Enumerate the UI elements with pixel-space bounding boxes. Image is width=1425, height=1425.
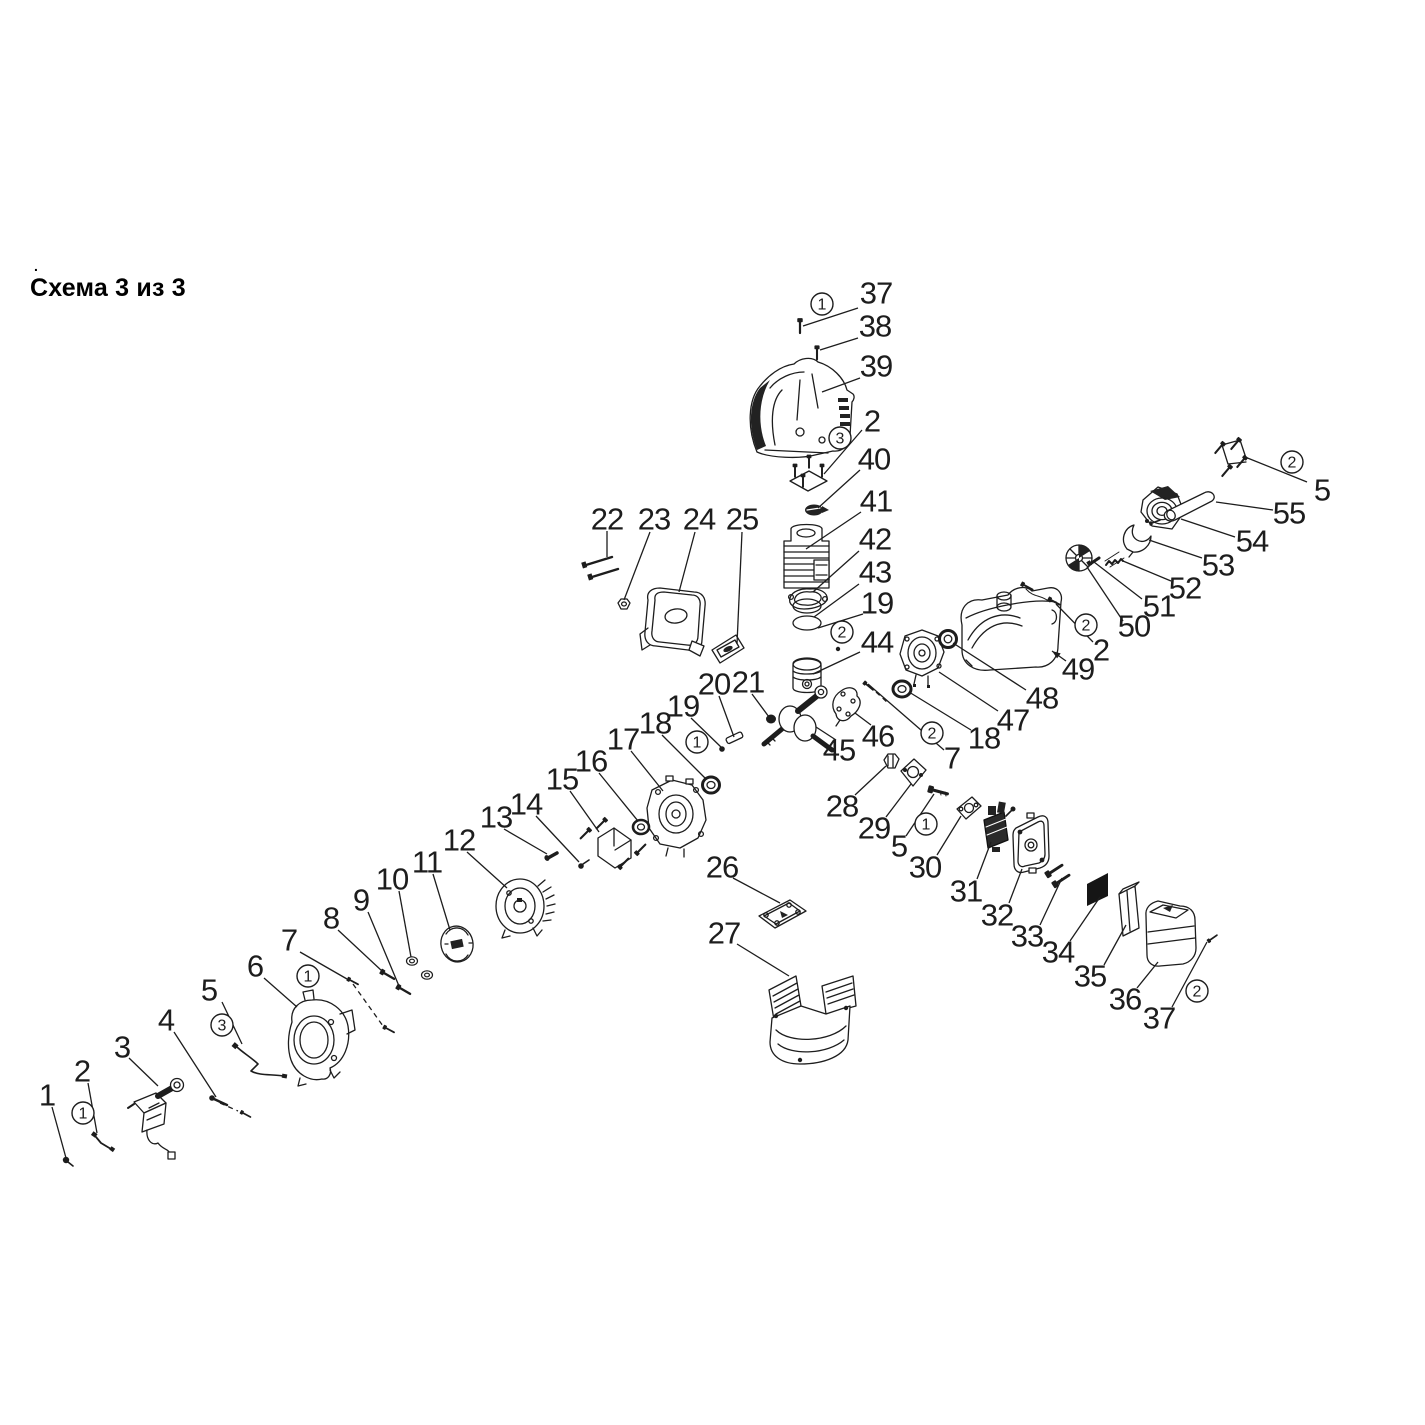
part-number-label: 29 — [858, 811, 890, 846]
part-number-label: 21 — [732, 665, 764, 700]
part-bearing-48 — [940, 631, 957, 648]
part-exhaust-studs — [581, 557, 618, 580]
part-screw-37-right — [1206, 933, 1218, 943]
leader-line — [679, 532, 695, 592]
part-number-label: 18 — [639, 706, 671, 741]
exploded-parts-diagram: . Схема 3 из 3 — [0, 0, 1425, 1425]
part-number-label: 33 — [1011, 919, 1043, 954]
leader-line — [737, 944, 789, 976]
part-number-label: 49 — [1062, 652, 1094, 687]
part-number-label: 45 — [823, 733, 855, 768]
part-muffler — [640, 588, 705, 656]
part-crankcase-left — [647, 776, 706, 857]
leader-line — [820, 338, 858, 350]
part-number-label: 26 — [706, 850, 738, 885]
part-number-label: 30 — [909, 850, 942, 885]
part-number-label: 31 — [950, 874, 982, 909]
part-filter-element — [1119, 882, 1139, 936]
svg-text:2: 2 — [838, 625, 847, 642]
part-oil-seal-16 — [633, 820, 649, 834]
part-number-label: 5 — [1314, 473, 1330, 508]
part-number-label: 16 — [575, 744, 607, 779]
part-number-label: 3 — [114, 1030, 130, 1065]
part-screw-38 — [814, 345, 819, 359]
part-number-label: 25 — [726, 502, 758, 537]
part-engine-guard — [769, 976, 856, 1064]
part-spring — [1105, 552, 1124, 567]
part-ignition-coil — [128, 1079, 184, 1160]
part-number-label: 43 — [859, 555, 891, 590]
part-number-label: 14 — [510, 787, 543, 822]
part-number-label: 19 — [667, 689, 699, 724]
part-number-label: 11 — [412, 845, 442, 880]
part-choke-rod-left — [232, 1042, 288, 1078]
part-bracket-right — [1213, 437, 1248, 478]
part-number-label: 7 — [281, 923, 297, 958]
part-number-label: 8 — [323, 901, 339, 936]
part-screw-1 — [63, 1157, 73, 1166]
part-number-label: 18 — [968, 721, 1000, 756]
leader-line — [52, 1107, 66, 1158]
part-nut-23 — [618, 599, 630, 609]
part-number-label: 2 — [864, 404, 880, 439]
qty-marker: 2 — [1186, 980, 1208, 1002]
qty-marker: 2 — [1281, 451, 1303, 473]
qty-marker: 3 — [829, 427, 851, 449]
part-number-label: 24 — [683, 502, 716, 537]
leader-line — [220, 1103, 238, 1111]
part-number-label: 47 — [997, 703, 1029, 738]
qty-marker: 1 — [686, 731, 708, 753]
part-pin-2 — [91, 1131, 115, 1152]
leader-line — [1123, 561, 1171, 581]
part-clip — [1123, 525, 1151, 557]
leader-line — [1104, 925, 1126, 965]
leader-line — [368, 912, 399, 986]
part-mount-plate-studs — [790, 455, 827, 491]
part-number-label: 6 — [247, 949, 263, 984]
part-number-label: 7 — [944, 741, 960, 776]
part-number-label: 32 — [981, 898, 1013, 933]
part-number-label: 20 — [698, 667, 731, 702]
leader-line — [1149, 540, 1202, 558]
part-filter-cover — [1146, 901, 1196, 966]
qty-marker: 1 — [811, 293, 833, 315]
leader-line — [129, 1058, 158, 1086]
part-number-label: 2 — [74, 1054, 90, 1089]
part-number-label: 9 — [353, 883, 369, 918]
part-screw-9 — [395, 983, 412, 996]
leader-lines-layer — [52, 308, 1307, 1158]
part-key — [725, 731, 743, 744]
svg-text:1: 1 — [304, 969, 313, 986]
leader-line — [1040, 878, 1062, 925]
leader-line — [1094, 562, 1142, 599]
part-bracket-15 — [579, 817, 647, 871]
leader-line — [353, 984, 383, 1026]
part-screws-33 — [1044, 862, 1071, 888]
qty-marker: 2 — [1075, 614, 1097, 636]
part-number-label: 37 — [860, 276, 892, 311]
leader-line — [1181, 519, 1235, 537]
leader-line — [1216, 502, 1273, 510]
leader-line — [1070, 897, 1100, 941]
part-washers — [407, 957, 433, 979]
part-number-label: 19 — [861, 586, 893, 621]
leader-line — [536, 816, 579, 862]
part-number-label: 44 — [861, 625, 894, 660]
part-screw-14 — [578, 860, 589, 869]
part-insulator — [901, 759, 926, 786]
qty-marker: 2 — [831, 621, 853, 643]
part-number-label: 12 — [443, 823, 475, 858]
part-intake-block — [884, 754, 899, 768]
leader-line — [433, 874, 450, 930]
leader-line — [338, 930, 382, 971]
qty-marker: 2 — [921, 722, 943, 744]
part-labels-layer: 3738392404142431944222324252021191817161… — [39, 276, 1330, 1113]
leader-line — [719, 696, 734, 737]
part-number-label: 27 — [708, 916, 740, 951]
part-number-label: 37 — [1143, 1001, 1175, 1036]
part-fan-cover — [288, 990, 355, 1086]
svg-text:2: 2 — [1082, 618, 1091, 635]
part-number-label: 53 — [1202, 548, 1234, 583]
qty-marker: 1 — [72, 1102, 94, 1124]
qty-marker: 3 — [211, 1014, 233, 1036]
part-number-label: 34 — [1042, 935, 1075, 970]
part-clip-19 — [719, 746, 725, 752]
part-cylinder — [784, 525, 829, 589]
part-oil-seal-left — [703, 777, 720, 793]
part-spacer-plate — [759, 900, 806, 928]
svg-text:1: 1 — [79, 1106, 88, 1123]
part-carburetor — [984, 802, 1016, 852]
part-clutch-shoes — [438, 923, 477, 965]
part-muffler-gasket — [712, 635, 744, 663]
svg-text:2: 2 — [928, 726, 937, 743]
svg-text:2: 2 — [1193, 984, 1202, 1001]
part-screw-7-center — [862, 680, 874, 691]
part-number-label: 35 — [1074, 959, 1106, 994]
part-number-label: 54 — [1236, 524, 1269, 559]
part-pin-13 — [543, 853, 557, 862]
leader-line — [631, 751, 663, 791]
title-dot: . — [34, 258, 38, 274]
leader-line — [855, 766, 886, 795]
part-number-label: 10 — [376, 862, 409, 897]
part-intake-clamp — [805, 505, 829, 516]
part-number-label: 41 — [860, 484, 892, 519]
part-fan-rotor — [1066, 545, 1092, 571]
part-number-label: 48 — [1026, 681, 1058, 716]
part-number-label: 13 — [480, 800, 512, 835]
svg-text:3: 3 — [218, 1018, 227, 1035]
part-number-label: 38 — [859, 309, 891, 344]
part-filter-base — [1013, 813, 1049, 873]
part-number-label: 39 — [860, 349, 892, 384]
part-number-label: 42 — [859, 522, 891, 557]
svg-text:1: 1 — [693, 735, 702, 752]
leader-line — [818, 470, 860, 508]
part-crankcase-gasket — [833, 688, 860, 726]
svg-text:1: 1 — [922, 817, 931, 834]
leader-line — [399, 891, 411, 957]
leader-line — [733, 878, 780, 903]
part-number-label: 55 — [1273, 496, 1305, 531]
part-crankcase-right — [900, 630, 944, 688]
leader-line — [876, 692, 888, 703]
part-number-label: 17 — [607, 722, 639, 757]
part-number-label: 5 — [891, 829, 907, 864]
part-number-label: 1 — [39, 1078, 55, 1113]
part-carb-gasket — [957, 797, 981, 819]
part-number-label: 22 — [591, 502, 623, 537]
part-number-label: 52 — [1169, 571, 1201, 606]
qty-marker: 1 — [915, 813, 937, 835]
part-number-label: 28 — [826, 789, 858, 824]
page-title: Схема 3 из 3 — [30, 274, 186, 303]
diagram-canvas: 3738392404142431944222324252021191817161… — [0, 0, 1425, 1425]
part-number-label: 40 — [858, 442, 891, 477]
leader-line — [264, 978, 297, 1007]
leader-line — [909, 692, 971, 730]
part-screw-37 — [797, 318, 802, 333]
part-number-label: 2 — [1093, 633, 1109, 668]
part-number-label: 23 — [638, 502, 670, 537]
svg-text:1: 1 — [818, 297, 827, 314]
part-number-label: 36 — [1109, 982, 1141, 1017]
leader-line — [624, 532, 650, 600]
leader-line — [939, 672, 998, 711]
leader-line — [599, 773, 638, 821]
part-number-label: 15 — [546, 762, 578, 797]
part-flywheel — [496, 879, 555, 938]
leader-line — [737, 532, 742, 644]
part-screw-5-mid — [927, 785, 948, 797]
qty-marker: 1 — [297, 965, 319, 987]
part-oil-seal-right — [893, 681, 911, 697]
part-number-label: 46 — [862, 719, 894, 754]
parts-layer — [63, 318, 1248, 1166]
leader-line — [570, 791, 599, 832]
part-number-label: 5 — [201, 973, 217, 1008]
svg-text:2: 2 — [1288, 455, 1297, 472]
svg-text:3: 3 — [836, 431, 845, 448]
part-number-label: 4 — [158, 1003, 175, 1038]
